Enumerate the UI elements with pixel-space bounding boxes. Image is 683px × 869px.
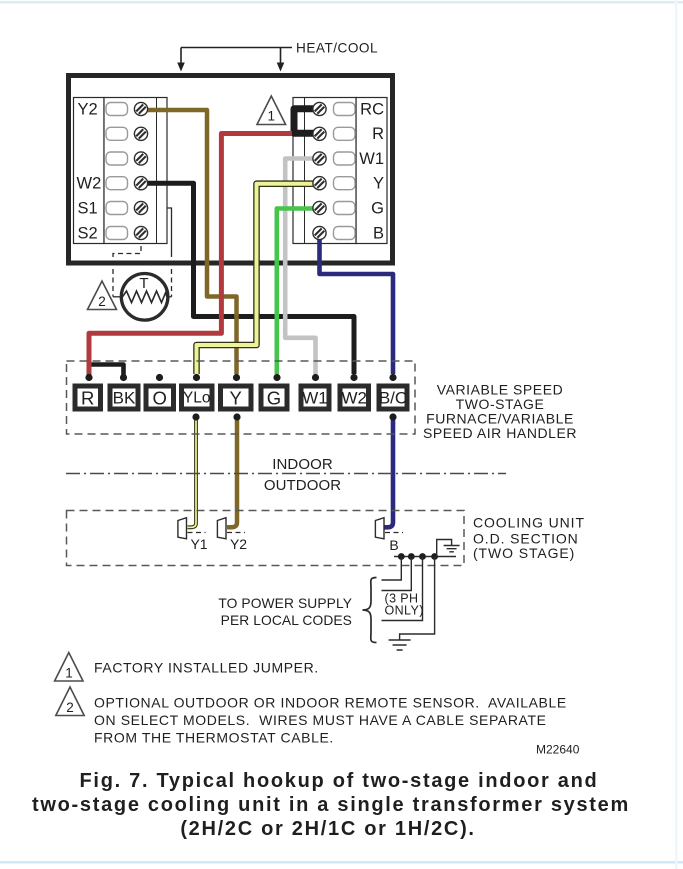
svg-text:SPEED AIR HANDLER: SPEED AIR HANDLER bbox=[423, 425, 577, 441]
svg-text:ONLY): ONLY) bbox=[385, 604, 424, 618]
svg-text:Y2: Y2 bbox=[78, 101, 98, 119]
svg-text:B: B bbox=[373, 225, 384, 243]
svg-text:OUTDOOR: OUTDOOR bbox=[264, 477, 341, 494]
svg-text:Y: Y bbox=[373, 175, 384, 193]
svg-text:OPTIONAL OUTDOOR OR INDOOR REM: OPTIONAL OUTDOOR OR INDOOR REMOTE SENSOR… bbox=[94, 695, 567, 711]
svg-text:(2H/2C or 2H/1C or 1H/2C).: (2H/2C or 2H/1C or 1H/2C). bbox=[180, 818, 475, 840]
svg-text:HEAT/COOL: HEAT/COOL bbox=[296, 41, 378, 56]
svg-text:Y: Y bbox=[230, 388, 242, 409]
svg-text:M22640: M22640 bbox=[536, 743, 580, 757]
svg-text:B: B bbox=[389, 537, 398, 553]
svg-text:Y2: Y2 bbox=[230, 536, 247, 552]
svg-text:W1: W1 bbox=[302, 389, 328, 408]
svg-text:W1: W1 bbox=[359, 150, 384, 168]
svg-text:Fig. 7. Typical hookup of two-: Fig. 7. Typical hookup of two-stage indo… bbox=[80, 770, 599, 792]
svg-text:R: R bbox=[372, 125, 384, 143]
svg-text:2: 2 bbox=[98, 294, 106, 309]
svg-text:PER LOCAL CODES: PER LOCAL CODES bbox=[221, 613, 352, 628]
svg-text:RC: RC bbox=[360, 101, 384, 119]
svg-text:ON SELECT MODELS. WIRES MUST: ON SELECT MODELS. WIRES MUST HAVE A CABL… bbox=[94, 712, 547, 728]
svg-text:S1: S1 bbox=[78, 200, 98, 218]
svg-text:(TWO STAGE): (TWO STAGE) bbox=[473, 545, 575, 561]
svg-text:S2: S2 bbox=[78, 225, 98, 243]
svg-text:BK: BK bbox=[113, 389, 136, 408]
svg-text:1: 1 bbox=[65, 666, 73, 681]
svg-text:G: G bbox=[371, 200, 384, 218]
svg-text:G: G bbox=[267, 388, 281, 409]
svg-text:TO POWER SUPPLY: TO POWER SUPPLY bbox=[218, 596, 352, 611]
svg-text:T: T bbox=[139, 275, 148, 292]
svg-text:1: 1 bbox=[268, 109, 276, 124]
svg-text:O: O bbox=[153, 388, 167, 409]
svg-text:COOLING UNIT: COOLING UNIT bbox=[473, 515, 585, 531]
svg-text:FROM THE THERMOSTAT CABLE.: FROM THE THERMOSTAT CABLE. bbox=[94, 730, 334, 746]
svg-text:W2: W2 bbox=[341, 389, 367, 408]
svg-text:R: R bbox=[81, 388, 94, 409]
svg-text:FACTORY INSTALLED JUMPER.: FACTORY INSTALLED JUMPER. bbox=[94, 660, 319, 676]
svg-text:two-stage cooling unit in a si: two-stage cooling unit in a single trans… bbox=[32, 794, 630, 816]
svg-text:W2: W2 bbox=[77, 175, 102, 193]
svg-text:B/C: B/C bbox=[379, 389, 407, 408]
svg-text:YLo: YLo bbox=[183, 390, 211, 407]
svg-text:2: 2 bbox=[66, 700, 74, 715]
svg-text:Y1: Y1 bbox=[190, 536, 207, 552]
svg-text:INDOOR: INDOOR bbox=[272, 456, 333, 473]
